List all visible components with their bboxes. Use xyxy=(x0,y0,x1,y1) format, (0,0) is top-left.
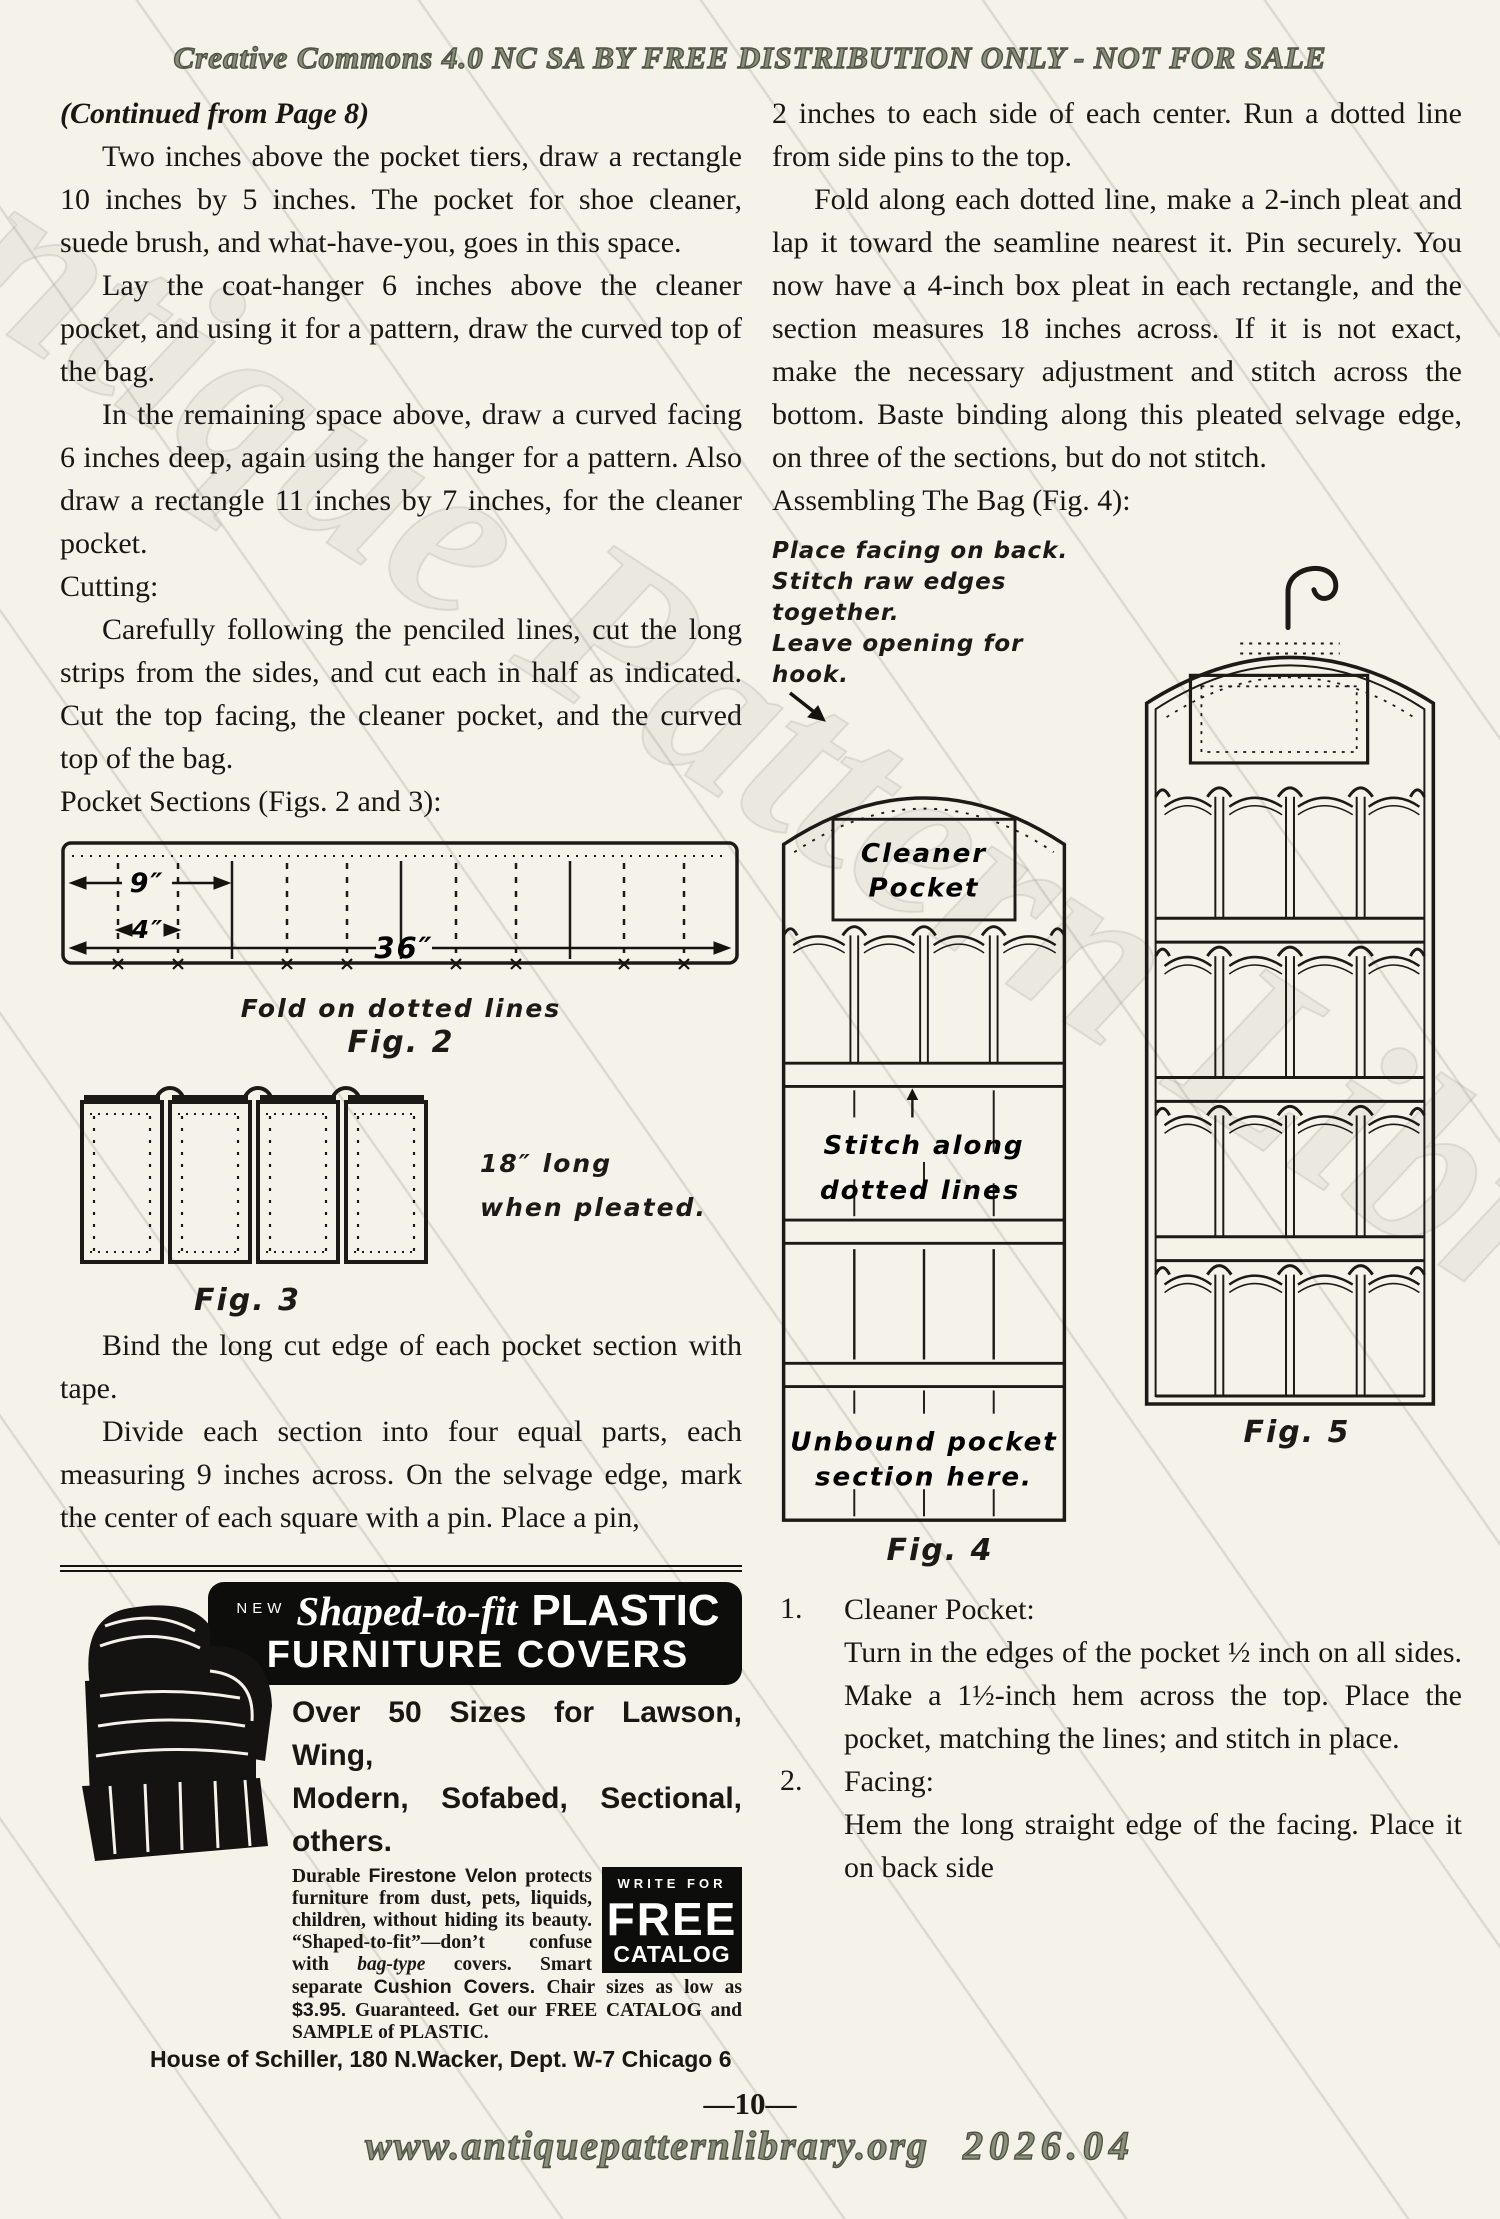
ad-banner: NEW Shaped-to-fit PLASTIC FURNITURE COVE… xyxy=(208,1582,742,1685)
fig4-stitch-note-line1: Stitch along xyxy=(824,1131,1025,1161)
list-item-body: Hem the long straight edge of the facing… xyxy=(844,1803,1462,1889)
ad-copy-block: Over 50 Sizes for Lawson, Wing, Modern, … xyxy=(292,1691,742,2044)
fig4-annotation: Place facing on back. Stitch raw edges t… xyxy=(772,536,1108,734)
footer-line: www.antiquepatternlibrary.org2026.04 xyxy=(0,2122,1500,2169)
fig5-tier-2 xyxy=(1156,947,1425,1077)
fig5-label: Fig. 5 xyxy=(1140,1415,1454,1450)
footer-site-url: www.antiquepatternlibrary.org xyxy=(365,2123,929,2168)
page-footer: —10— www.antiquepatternlibrary.org2026.0… xyxy=(0,2086,1500,2169)
ad-body-seg: bag-type xyxy=(357,1954,425,1975)
fig4-unbound-line1: Unbound pocket xyxy=(790,1427,1057,1457)
fig3-note: 18″ long when pleated. xyxy=(480,1142,707,1318)
fig4-unbound-line2: section here. xyxy=(815,1462,1033,1492)
fig5-tier-3 xyxy=(1156,1106,1425,1236)
free-label: FREE xyxy=(606,1895,738,1943)
fig4-cleaner-pocket-line1: Cleaner xyxy=(861,839,987,869)
fig2-dim-9: 9″ xyxy=(130,868,165,899)
paragraph: In the remaining space above, draw a cur… xyxy=(60,393,742,565)
cutting-heading: Cutting: xyxy=(60,565,742,608)
left-column: (Continued from Page 8) Two inches above… xyxy=(60,92,742,1975)
list-item: 2. Facing: Hem the long straight edge of… xyxy=(772,1760,1462,1889)
paragraph: Two inches above the pocket tiers, draw … xyxy=(60,135,742,264)
ad-sizes-line2: Modern, Sofabed, Sectional, others. xyxy=(292,1777,742,1863)
pocket-sections-heading: Pocket Sections (Figs. 2 and 3): xyxy=(60,780,742,823)
list-item-content: Cleaner Pocket: Turn in the edges of the… xyxy=(844,1588,1462,1760)
figure-5-drawing xyxy=(1140,536,1440,1408)
fig4-annotation-line3: Leave opening for hook. xyxy=(772,629,1108,691)
fig5-tier-4 xyxy=(1156,1266,1425,1396)
ad-banner-line1: NEW Shaped-to-fit PLASTIC xyxy=(224,1586,732,1636)
fig4-stitch-note-line2: dotted lines xyxy=(820,1176,1020,1206)
fig3-note-line1: 18″ long xyxy=(480,1142,707,1186)
catalog-label: CATALOG xyxy=(606,1943,738,1965)
figure-5: Fig. 5 xyxy=(1140,536,1454,1568)
fig3-label: Fig. 3 xyxy=(194,1283,444,1318)
paragraph: 2 inches to each side of each center. Ru… xyxy=(772,92,1462,178)
list-item-number: 1. xyxy=(772,1588,844,1760)
paragraph: Bind the long cut edge of each pocket se… xyxy=(60,1324,742,1410)
write-for-label: WRITE FOR xyxy=(606,1873,738,1895)
scanned-magazine-page: Antique Pattern Library Creative Commons… xyxy=(0,0,1500,2219)
fig2-dim-36: 36″ xyxy=(374,931,433,965)
fig4-label: Fig. 4 xyxy=(772,1533,1108,1568)
paragraph: Fold along each dotted line, make a 2-in… xyxy=(772,178,1462,479)
fig2-dim-4: 4″ xyxy=(131,915,165,944)
ad-body-seg: Chair sizes as low as xyxy=(535,1977,742,1998)
fig4-cleaner-pocket-line2: Pocket xyxy=(869,874,980,904)
ad-body-seg: Guaranteed. Get our FREE CATALOG and SAM… xyxy=(292,2000,742,2043)
fig4-pocket-tier xyxy=(784,927,1065,1064)
assembling-heading: Assembling The Bag (Fig. 4): xyxy=(772,479,1462,522)
ad-body-text: WRITE FOR FREE CATALOG Durable Firestone… xyxy=(292,1865,742,2044)
right-column: 2 inches to each side of each center. Ru… xyxy=(772,92,1462,1889)
ad-body-seg: Cushion Covers. xyxy=(374,1976,535,1998)
paragraph: Lay the coat-hanger 6 inches above the c… xyxy=(60,264,742,393)
fig4-annotation-line1: Place facing on back. xyxy=(772,536,1108,567)
fig2-label: Fig. 2 xyxy=(60,1025,742,1060)
figure-4: Place facing on back. Stitch raw edges t… xyxy=(772,536,1108,1568)
ad-body-seg: $3.95. xyxy=(292,1999,346,2021)
ad-new-label: NEW xyxy=(236,1600,286,1617)
continued-from-note: (Continued from Page 8) xyxy=(60,92,742,135)
page-number: —10— xyxy=(0,2086,1500,2122)
ad-address: House of Schiller, 180 N.Wacker, Dept. W… xyxy=(150,2046,742,2073)
list-item-title: Cleaner Pocket: xyxy=(844,1588,1462,1631)
footer-edition-code: 2026.04 xyxy=(963,2123,1135,2168)
figures-4-and-5: Place facing on back. Stitch raw edges t… xyxy=(772,536,1462,1568)
fig5-hanger-hook xyxy=(1288,568,1336,627)
list-item-content: Facing: Hem the long straight edge of th… xyxy=(844,1760,1462,1889)
fig5-tier-bands xyxy=(1156,942,1425,1261)
ad-script-title: Shaped-to-fit xyxy=(296,1587,517,1635)
fig3-pleated-panels xyxy=(82,1088,426,1262)
figure-2-drawing: 9″ 4″ 36″ xyxy=(60,837,740,987)
ad-plastic-title: PLASTIC xyxy=(531,1586,719,1636)
list-item-body: Turn in the edges of the pocket ½ inch o… xyxy=(844,1631,1462,1760)
ad-sizes-line1: Over 50 Sizes for Lawson, Wing, xyxy=(292,1691,742,1777)
list-item-title: Facing: xyxy=(844,1760,1462,1803)
paragraph: Carefully following the penciled lines, … xyxy=(60,608,742,780)
ad-body-seg: Durable xyxy=(292,1866,368,1887)
ad-body-seg: Firestone Velon xyxy=(368,1865,517,1887)
armchair-illustration xyxy=(60,1586,286,1874)
license-header: Creative Commons 4.0 NC SA BY FREE DISTR… xyxy=(0,40,1500,76)
figure-3-drawing-wrap: Fig. 3 xyxy=(74,1086,444,1318)
fig5-tier-1 xyxy=(1156,788,1425,918)
figure-2: 9″ 4″ 36″ Fold on dotted lines Fig. 2 xyxy=(60,837,742,1060)
figure-3: Fig. 3 18″ long when pleated. xyxy=(74,1086,742,1318)
figure-3-drawing xyxy=(74,1086,444,1276)
fig3-note-line2: when pleated. xyxy=(480,1186,707,1230)
free-catalog-box: WRITE FOR FREE CATALOG xyxy=(602,1867,742,1973)
instruction-list: 1. Cleaner Pocket: Turn in the edges of … xyxy=(772,1588,1462,1889)
fig4-stitch-section xyxy=(784,1086,1065,1243)
fig4-plain-tier xyxy=(784,1249,1065,1386)
annotation-arrow-icon xyxy=(772,691,842,725)
fig5-back-pocket xyxy=(1190,675,1367,763)
furniture-covers-ad: NEW Shaped-to-fit PLASTIC FURNITURE COVE… xyxy=(60,1565,742,1890)
ad-title-line2: FURNITURE COVERS xyxy=(224,1634,732,1677)
paragraph: Divide each section into four equal part… xyxy=(60,1410,742,1539)
chair-art xyxy=(82,1605,272,1861)
list-item-number: 2. xyxy=(772,1760,844,1889)
figure-4-drawing: Stitch along dotted lines xyxy=(772,736,1076,1526)
fig4-annotation-line2: Stitch raw edges together. xyxy=(772,567,1108,629)
fig2-note: Fold on dotted lines xyxy=(60,994,742,1023)
list-item: 1. Cleaner Pocket: Turn in the edges of … xyxy=(772,1588,1462,1760)
